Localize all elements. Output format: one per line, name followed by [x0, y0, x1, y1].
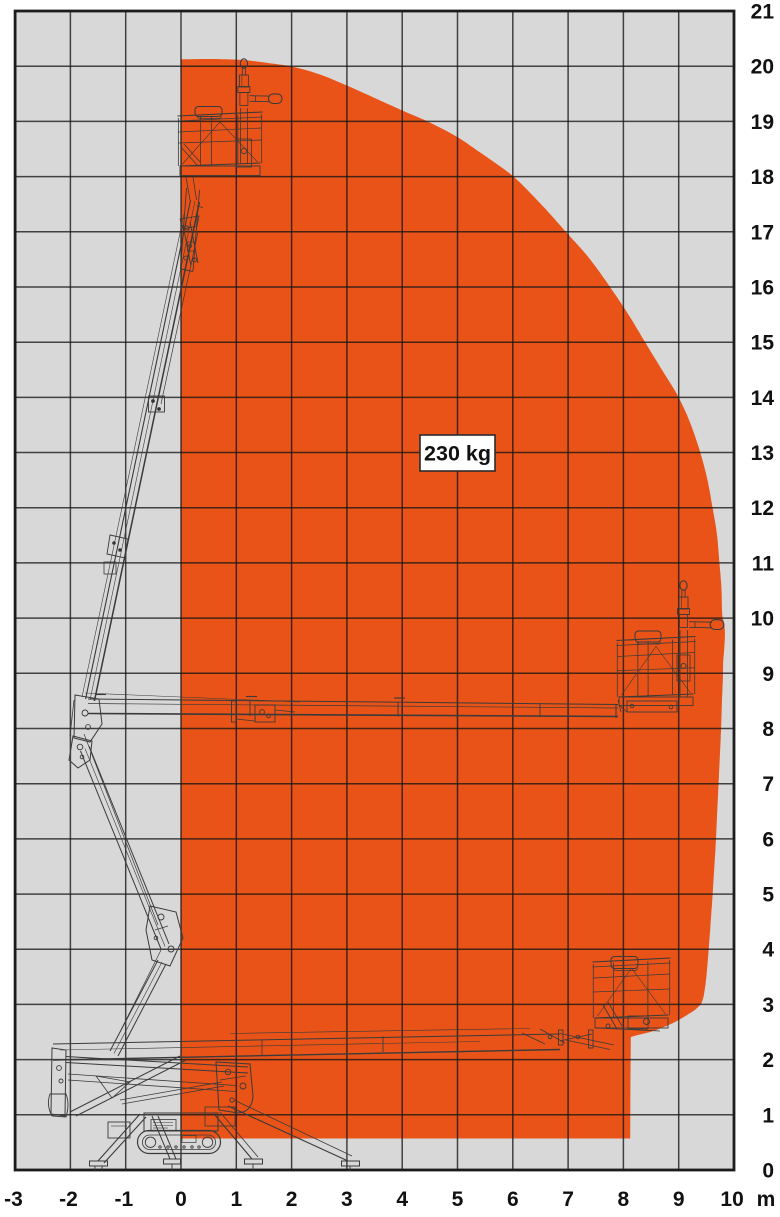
svg-text:14: 14 — [751, 387, 775, 410]
svg-text:11: 11 — [752, 552, 775, 575]
svg-text:21: 21 — [751, 1, 775, 24]
svg-text:10: 10 — [751, 608, 774, 631]
svg-text:16: 16 — [751, 277, 774, 300]
svg-text:6: 6 — [507, 1188, 519, 1211]
svg-text:0: 0 — [762, 1160, 774, 1183]
svg-text:4: 4 — [396, 1188, 408, 1211]
svg-text:9: 9 — [762, 663, 774, 686]
svg-text:18: 18 — [751, 166, 775, 189]
svg-text:-2: -2 — [59, 1188, 78, 1211]
svg-text:12: 12 — [751, 497, 774, 520]
svg-text:2: 2 — [762, 1049, 774, 1072]
svg-text:8: 8 — [618, 1188, 630, 1211]
svg-text:m: m — [757, 1188, 776, 1211]
svg-text:4: 4 — [762, 939, 774, 962]
svg-text:230 kg: 230 kg — [424, 441, 491, 465]
svg-text:19: 19 — [751, 111, 774, 134]
svg-text:10: 10 — [720, 1188, 743, 1211]
svg-text:17: 17 — [751, 221, 774, 244]
svg-text:8: 8 — [762, 718, 774, 741]
svg-text:-1: -1 — [114, 1188, 133, 1211]
svg-text:5: 5 — [452, 1188, 464, 1211]
svg-text:20: 20 — [751, 56, 774, 79]
svg-text:0: 0 — [175, 1188, 187, 1211]
svg-text:5: 5 — [762, 884, 774, 907]
svg-text:7: 7 — [562, 1188, 574, 1211]
svg-text:15: 15 — [751, 332, 775, 355]
svg-text:-3: -3 — [4, 1188, 23, 1211]
svg-text:3: 3 — [762, 994, 774, 1017]
svg-text:3: 3 — [341, 1188, 353, 1211]
svg-text:2: 2 — [286, 1188, 298, 1211]
svg-text:7: 7 — [762, 773, 774, 796]
svg-text:13: 13 — [751, 442, 774, 465]
svg-text:9: 9 — [673, 1188, 685, 1211]
svg-text:1: 1 — [230, 1188, 242, 1211]
svg-text:6: 6 — [762, 828, 774, 851]
svg-text:1: 1 — [762, 1104, 774, 1127]
